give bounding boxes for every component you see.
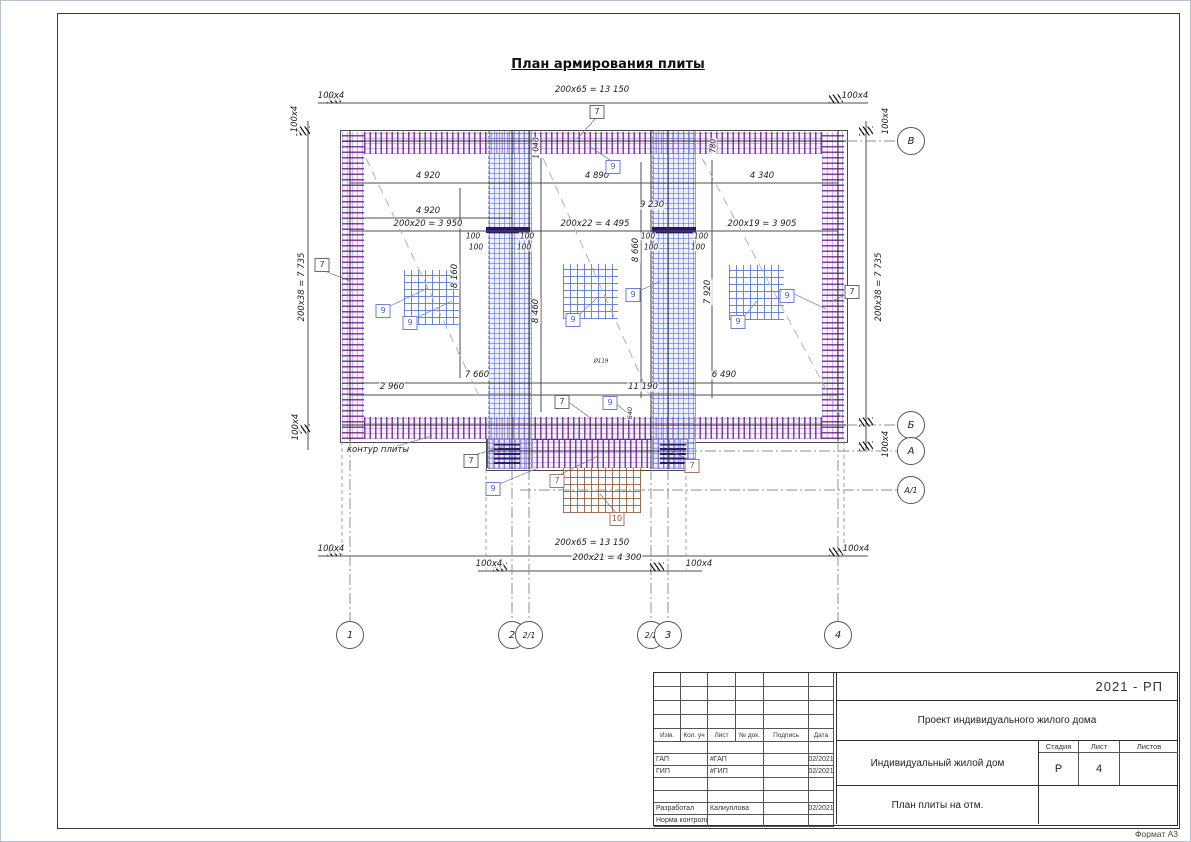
signature-cell (708, 742, 764, 754)
column-header: № док. (736, 729, 764, 742)
title-block-signature-table: ГАП#ГАП02/2021ГИП#ГИП02/2021РазработалКа… (654, 742, 834, 827)
change-cell (809, 673, 834, 687)
dimension-label: 200x22 = 4 495 (560, 220, 631, 229)
document-code: 2021 - РП (837, 673, 1177, 701)
column-header: Дата (809, 729, 834, 742)
dimension-label: 200x38 = 7 735 (875, 252, 884, 323)
stage-value: Р (1039, 753, 1079, 785)
callout-badge: 9 (731, 315, 746, 329)
signature-cell (809, 791, 834, 803)
axis-bubble: А (897, 437, 925, 465)
callout-badge: 7 (845, 285, 860, 299)
change-cell (654, 673, 681, 687)
callout-badge: 9 (566, 313, 581, 327)
dimension-label: 100x4 (317, 545, 346, 554)
sheet-title: План плиты на отм. (837, 786, 1038, 824)
change-cell (681, 715, 708, 729)
dimension-label: 100 (465, 232, 481, 240)
signature-cell: #ГАП (708, 754, 764, 766)
change-cell (681, 687, 708, 701)
sheet-number: 4 (1079, 753, 1120, 785)
change-cell (681, 701, 708, 715)
dimension-label: 2 960 (379, 383, 405, 392)
signature-cell (809, 815, 834, 827)
signature-cell (764, 815, 809, 827)
sheet-title-right-cell (1038, 786, 1177, 824)
signature-cell: 02/2021 (809, 766, 834, 778)
signature-cell (809, 778, 834, 790)
signature-cell (654, 778, 708, 790)
object-name: Индивидуальный жилой дом (837, 741, 1038, 785)
dimension-label: 100 (690, 243, 706, 251)
callout-badge: 9 (780, 289, 795, 303)
note-label: контур плиты (347, 446, 409, 455)
sheet-header: Лист (1079, 741, 1120, 753)
dim-tick (859, 442, 873, 451)
column-header: Лист (708, 729, 736, 742)
change-cell (736, 715, 764, 729)
dimension-label: 9 230 (639, 201, 665, 210)
signature-cell (764, 778, 809, 790)
dimension-label: 4 920 (415, 172, 441, 181)
change-cell (654, 715, 681, 729)
dimension-label: 780 (709, 138, 717, 154)
dimension-label: 200x19 = 3 905 (727, 220, 798, 229)
dimension-label: 200x38 = 7 735 (298, 252, 307, 323)
dimension-label: 100x4 (842, 545, 871, 554)
column-header: Изм. (654, 729, 681, 742)
change-cell (708, 673, 736, 687)
sheets-total (1120, 753, 1178, 785)
callout-badge: 7 (555, 395, 570, 409)
dim-tick (650, 563, 664, 572)
dimension-label: 100x4 (685, 560, 714, 569)
signature-cell: Разработал (654, 803, 708, 815)
axis-bubble: А/1 (897, 476, 925, 504)
change-cell (736, 701, 764, 715)
change-cell (708, 701, 736, 715)
column-header: Подпись (764, 729, 809, 742)
change-cell (809, 701, 834, 715)
signature-cell (708, 815, 764, 827)
signature-cell: Калиуллова (708, 803, 764, 815)
signature-cell (708, 778, 764, 790)
dimension-label: 100 (643, 243, 659, 251)
dimension-label: 100x4 (882, 107, 891, 136)
change-cell (736, 687, 764, 701)
stage-header: Стадия (1039, 741, 1079, 753)
dimension-label: 8 160 (451, 263, 460, 289)
dimension-label: 11 190 (627, 383, 659, 392)
callout-badge: 10 (610, 512, 625, 526)
dimension-label: 6 490 (711, 371, 737, 380)
dimension-label: 100x4 (291, 105, 300, 134)
change-cell (736, 673, 764, 687)
dimension-label: 200x20 = 3 950 (393, 220, 464, 229)
dimension-label: 8 460 (532, 298, 541, 324)
change-cell (809, 715, 834, 729)
axis-bubble: 4 (824, 621, 852, 649)
callout-badge: 9 (606, 160, 621, 174)
signature-cell: 02/2021 (809, 803, 834, 815)
signature-cell: ГАП (654, 754, 708, 766)
title-block-change-table: Изм.Кол. учЛист№ док.ПодписьДата (654, 673, 834, 742)
change-cell (708, 687, 736, 701)
callout-badge: 7 (590, 105, 605, 119)
signature-cell (764, 766, 809, 778)
change-cell (764, 673, 809, 687)
dimension-label: 1 040 (532, 136, 540, 159)
dimension-label: 100 (693, 232, 709, 240)
dimension-label: 100x4 (841, 92, 870, 101)
axis-bubble: В (897, 127, 925, 155)
callout-badge: 7 (315, 258, 330, 272)
callout-badge: 9 (376, 304, 391, 318)
signature-cell (764, 803, 809, 815)
signature-cell (764, 742, 809, 754)
change-cell (654, 687, 681, 701)
signature-cell (764, 754, 809, 766)
axis-bubble: 1 (336, 621, 364, 649)
dimension-label: 100x4 (882, 430, 891, 459)
callout-badge: 7 (464, 454, 479, 468)
signature-cell (809, 742, 834, 754)
axis-bubble: Б (897, 411, 925, 439)
dimension-label: 100x4 (475, 560, 504, 569)
dimension-label: 200x65 = 13 150 (554, 539, 630, 548)
dimension-label: 8 660 (632, 237, 641, 263)
title-block-right: 2021 - РП Проект индивидуального жилого … (836, 673, 1177, 824)
change-cell (764, 715, 809, 729)
dimension-label: 640 (627, 406, 634, 420)
change-cell (654, 701, 681, 715)
dimension-label: 7 920 (704, 279, 713, 305)
callout-badge: 9 (603, 396, 618, 410)
change-cell (764, 687, 809, 701)
signature-cell (654, 742, 708, 754)
change-cell (809, 687, 834, 701)
callout-badge: 9 (403, 316, 418, 330)
project-name: Проект индивидуального жилого дома (837, 701, 1177, 741)
dim-tick (859, 127, 873, 136)
change-cell (764, 701, 809, 715)
drawing-sheet: План армирования плиты (0, 0, 1191, 842)
signature-cell: #ГИП (708, 766, 764, 778)
format-label: Формат А3 (1040, 829, 1178, 839)
signature-cell (764, 791, 809, 803)
change-cell (708, 715, 736, 729)
signature-cell: ГИП (654, 766, 708, 778)
dim-tick (859, 418, 873, 427)
dimension-label: 100 (468, 243, 484, 251)
note-label: Ø119 (594, 359, 609, 365)
dimension-label: 100 (516, 243, 532, 251)
sheets-header: Листов (1120, 741, 1178, 753)
signature-cell (654, 791, 708, 803)
dimension-label: 200x21 = 4 300 (572, 554, 643, 563)
dimension-label: 4 340 (749, 172, 775, 181)
callout-badge: 9 (486, 482, 501, 496)
signature-cell: Норма контроль (654, 815, 708, 827)
stage-table: Стадия Лист Листов Р 4 (1038, 741, 1177, 785)
dimension-label: 200x65 = 13 150 (554, 86, 630, 95)
axis-bubble: 3 (654, 621, 682, 649)
dimension-label: 7 660 (464, 371, 490, 380)
change-cell (681, 673, 708, 687)
callout-badge: 7 (550, 474, 565, 488)
dimension-label: 4 920 (415, 207, 441, 216)
callout-badge: 9 (626, 288, 641, 302)
signature-cell (708, 791, 764, 803)
column-header: Кол. уч (681, 729, 708, 742)
dimension-label: 100x4 (292, 413, 301, 442)
axis-bubble: 2/1 (515, 621, 543, 649)
signature-cell: 02/2021 (809, 754, 834, 766)
dimension-label: 100 (519, 232, 535, 240)
dimension-label: 100 (640, 232, 656, 240)
title-block: Изм.Кол. учЛист№ док.ПодписьДата ГАП#ГАП… (653, 672, 1178, 826)
dimension-label: 100x4 (317, 92, 346, 101)
callout-badge: 7 (685, 459, 700, 473)
